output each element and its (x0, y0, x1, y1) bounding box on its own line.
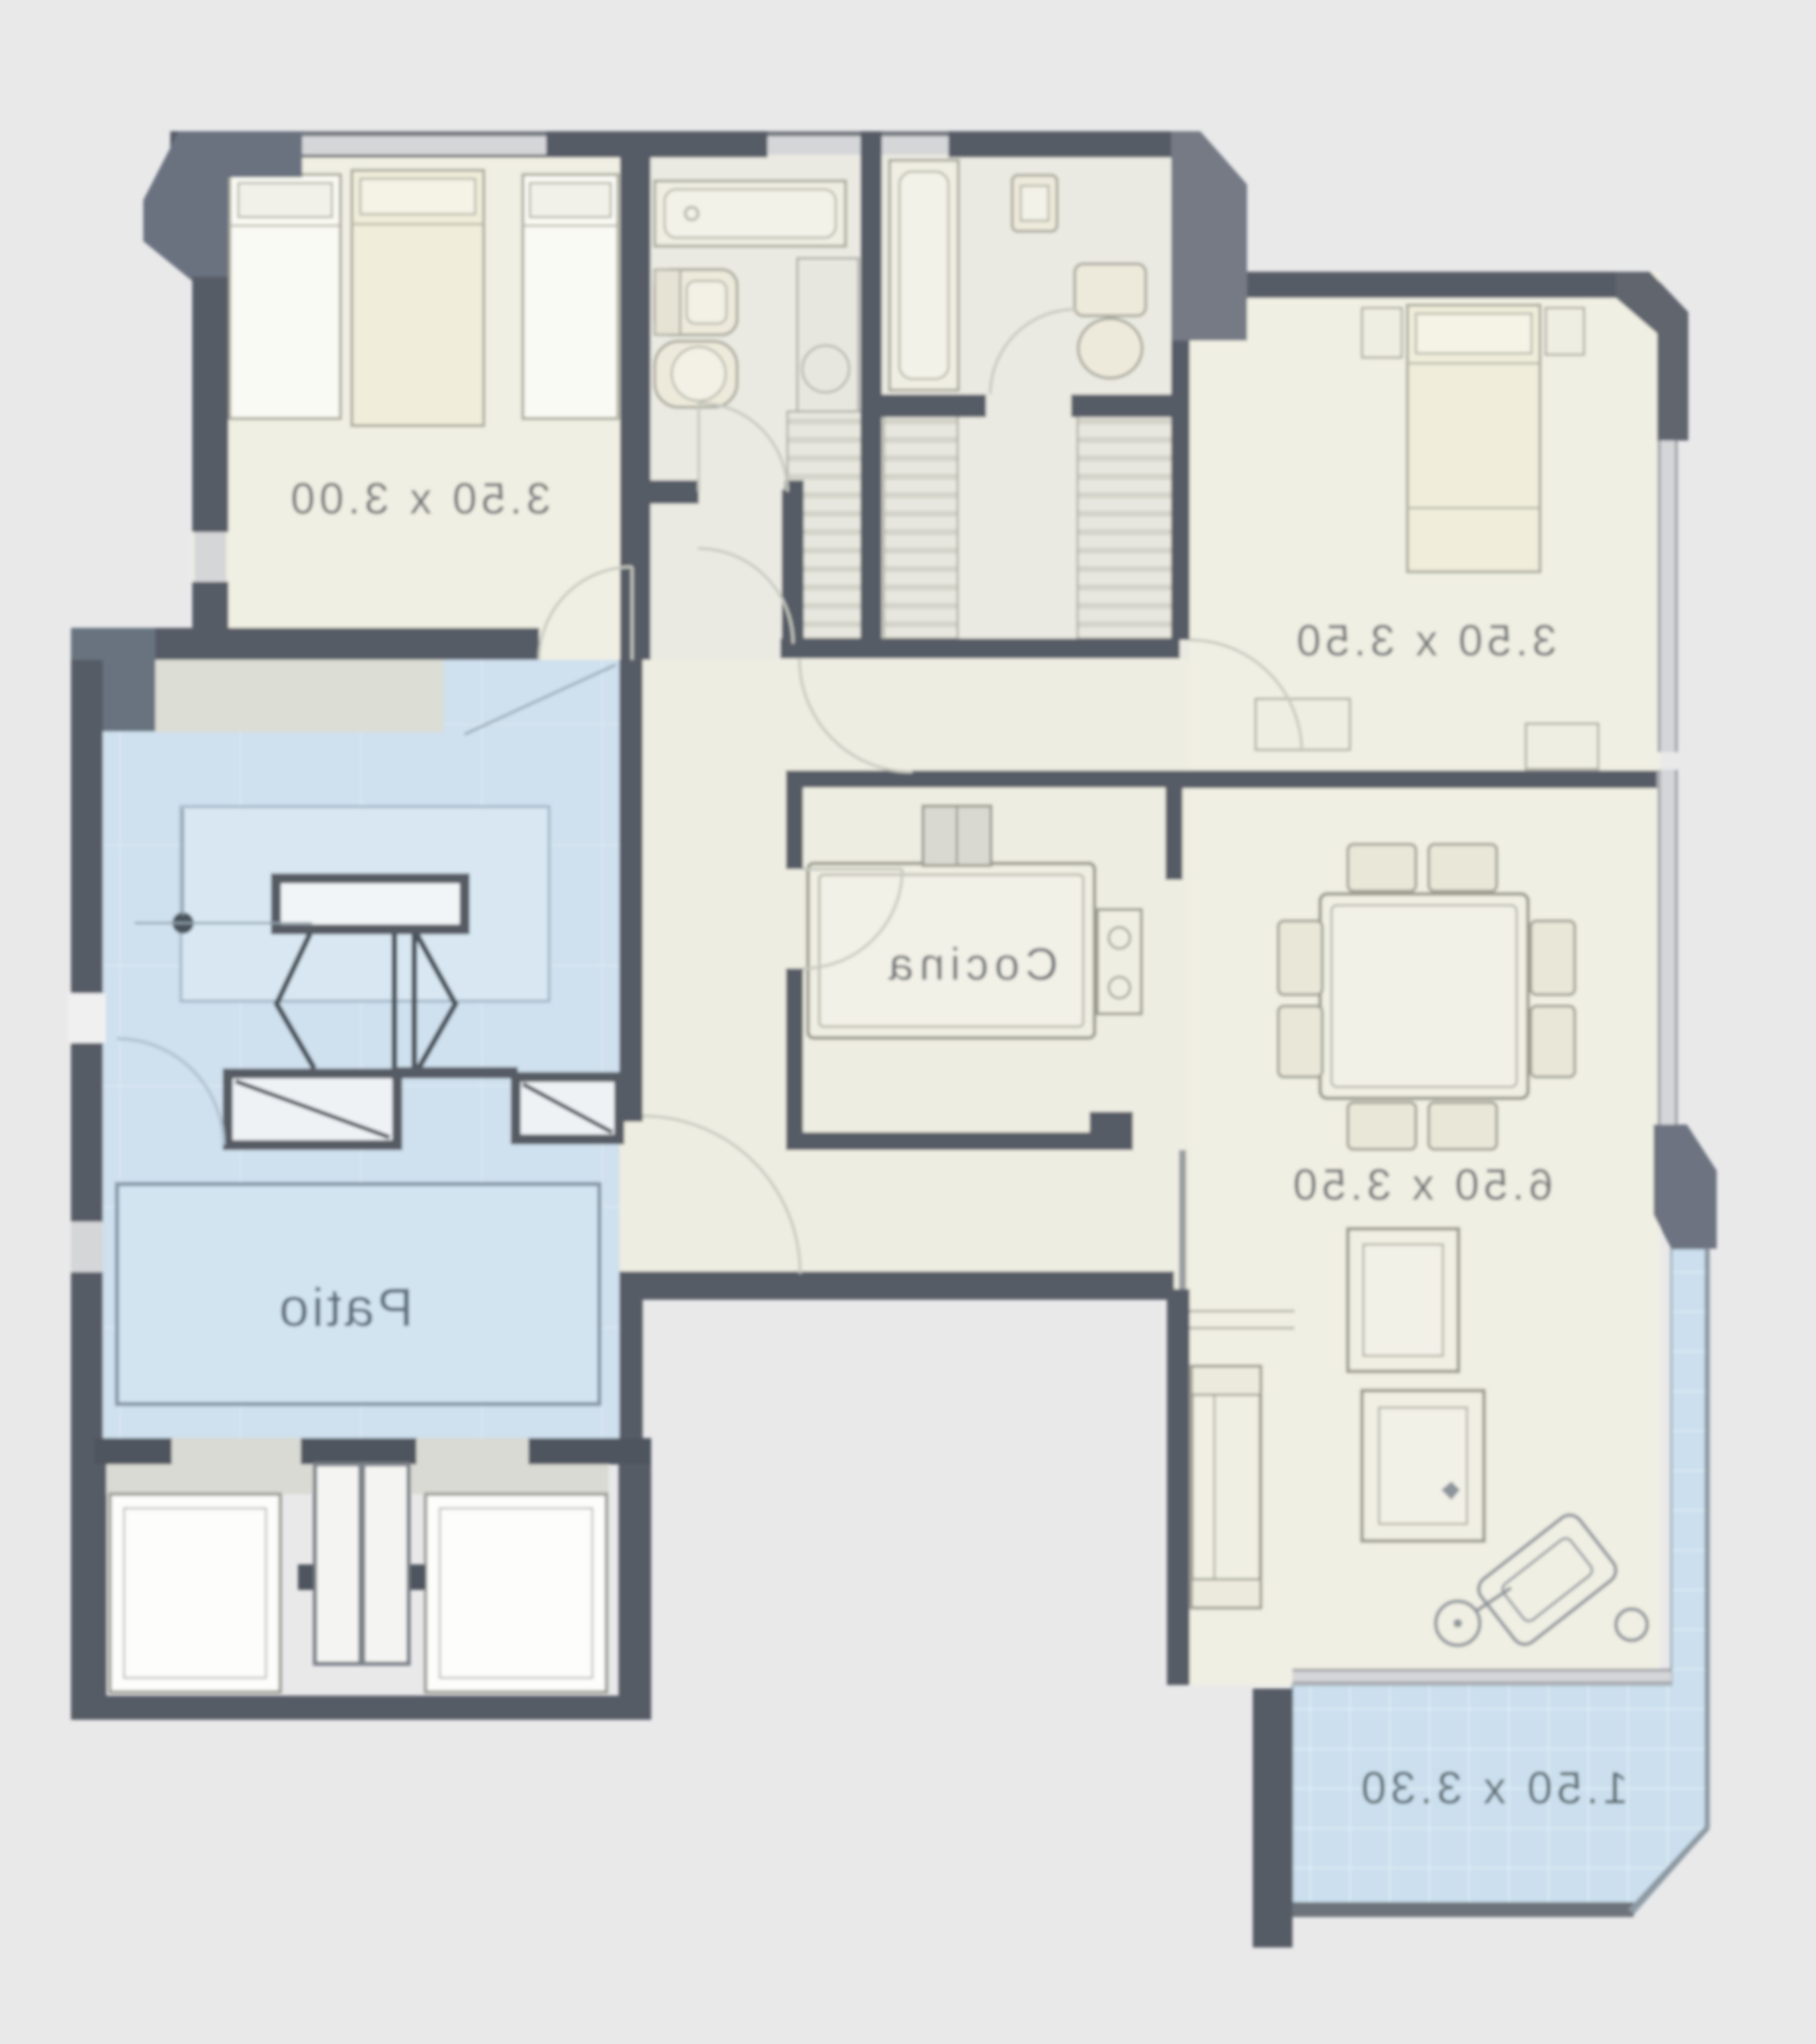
svg-text:3.50 x 3.50: 3.50 x 3.50 (1292, 617, 1557, 665)
svg-text:3.50 x 3.00: 3.50 x 3.00 (287, 475, 551, 524)
svg-text:1.50 x 3.30: 1.50 x 3.30 (1357, 1762, 1629, 1813)
svg-text:6.50 x 3.50: 6.50 x 3.50 (1289, 1161, 1554, 1210)
svg-text:Patio: Patio (276, 1278, 413, 1338)
svg-text:Cocina: Cocina (882, 939, 1058, 990)
